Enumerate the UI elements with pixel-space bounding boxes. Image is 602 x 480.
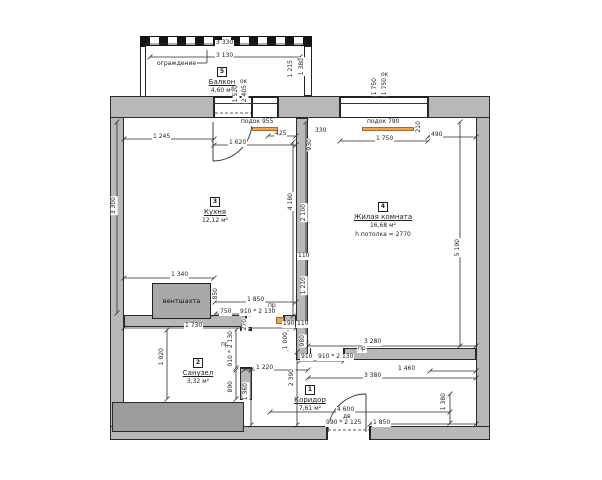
floor-plan: вентшахта 3 3303 130ограждение1 2151 380… — [0, 0, 602, 480]
room-name-balcony: Балкон — [192, 78, 252, 86]
room-marker-living: 4 — [378, 202, 388, 212]
room-name-bathroom: Санузел — [168, 369, 228, 377]
dimension-label: 890 — [228, 380, 235, 393]
dimension-label: 980 — [300, 334, 307, 347]
room-area-living: 16,68 м² — [352, 222, 414, 229]
room-marker-kitchen: 3 — [210, 197, 220, 207]
dimension-label: 1 920 — [159, 347, 166, 366]
dimension-label: 5 190 — [455, 238, 462, 257]
dimension-label: 330 — [314, 128, 327, 135]
dimension-label: 1 730 — [184, 323, 203, 330]
dimension-label: 490 — [430, 132, 443, 139]
dimension-label: 750 — [219, 309, 232, 316]
dimension-label: 210 — [416, 120, 423, 133]
dimension-label: 1 380 — [441, 392, 448, 411]
dimension-label: подок 955 — [240, 119, 274, 126]
dimension-label: 850 — [213, 287, 220, 300]
room-label-balcony: 5 Балкон 4,60 м² — [192, 58, 252, 94]
dimension-label: 1 360 — [243, 382, 250, 401]
dimension-label: 1 850 — [372, 420, 391, 427]
dimension-label: 3 330 — [215, 40, 234, 47]
dimension-label: 425 — [274, 131, 287, 138]
dimension-label: 1 750 — [382, 77, 389, 96]
dimension-label: 3 380 — [363, 373, 382, 380]
room-marker-bathroom: 2 — [193, 358, 203, 368]
dimension-label: 1 380 — [299, 57, 306, 76]
dimension-label: 1 245 — [152, 134, 171, 141]
dimension-label: 990 * 2 125 — [325, 420, 362, 427]
dimension-label: 910 * 2 130 — [228, 330, 235, 367]
room-area-balcony: 4,60 м² — [192, 87, 252, 94]
room-marker-balcony: 5 — [217, 67, 227, 77]
room-ceiling-height: h потолка = 2770 — [352, 231, 414, 238]
dimension-label: 2 100 — [301, 203, 308, 222]
dimension-label: 1 340 — [170, 272, 189, 279]
room-area-corridor: 7,61 м² — [280, 405, 340, 412]
room-label-bathroom: 2 Санузел 3,32 м² — [168, 349, 228, 385]
dimension-label: 1 215 — [288, 59, 295, 78]
dimension-label: 110 — [296, 321, 309, 328]
room-name-corridor: Коридор — [280, 396, 340, 404]
room-name-kitchen: Кухня — [185, 208, 245, 216]
dimension-label: 270 — [242, 318, 249, 331]
room-area-bathroom: 3,32 м² — [168, 378, 228, 385]
room-area-kitchen: 12,12 м² — [185, 217, 245, 224]
dimension-label: 190 — [282, 321, 295, 328]
dimension-label: пр — [357, 346, 367, 353]
dimension-label: 3 300 — [111, 196, 118, 215]
dimension-label: 4 180 — [288, 192, 295, 211]
dimension-label: 930 — [307, 138, 314, 151]
room-marker-corridor: 1 — [305, 385, 315, 395]
dimension-label: 1 210 — [301, 276, 308, 295]
dimension-label: подок 790 — [366, 119, 400, 126]
dimension-label: ограждение — [156, 61, 197, 68]
dimension-label: 1 850 — [246, 297, 265, 304]
room-label-corridor: 1 Коридор 7,61 м² — [280, 376, 340, 412]
dimension-label: 910 * 2 130 — [239, 309, 276, 316]
dimension-label: 1 750 — [375, 136, 394, 143]
room-label-living: 4 Жилая комната 16,68 м² h потолка = 277… — [352, 193, 414, 238]
dimension-label: 1 460 — [397, 366, 416, 373]
room-label-kitchen: 3 Кухня 12,12 м² — [185, 188, 245, 224]
dimension-label: 1 750 — [372, 77, 379, 96]
dimension-label: 910 — [300, 354, 313, 361]
dimension-label: 1 000 — [283, 331, 290, 350]
dimension-label: 1 620 — [228, 140, 247, 147]
dimension-label: 1 220 — [255, 365, 274, 372]
dimension-label: 110 — [297, 253, 310, 260]
room-name-living: Жилая комната — [352, 213, 414, 221]
dimension-label: 910 * 2 130 — [317, 354, 354, 361]
